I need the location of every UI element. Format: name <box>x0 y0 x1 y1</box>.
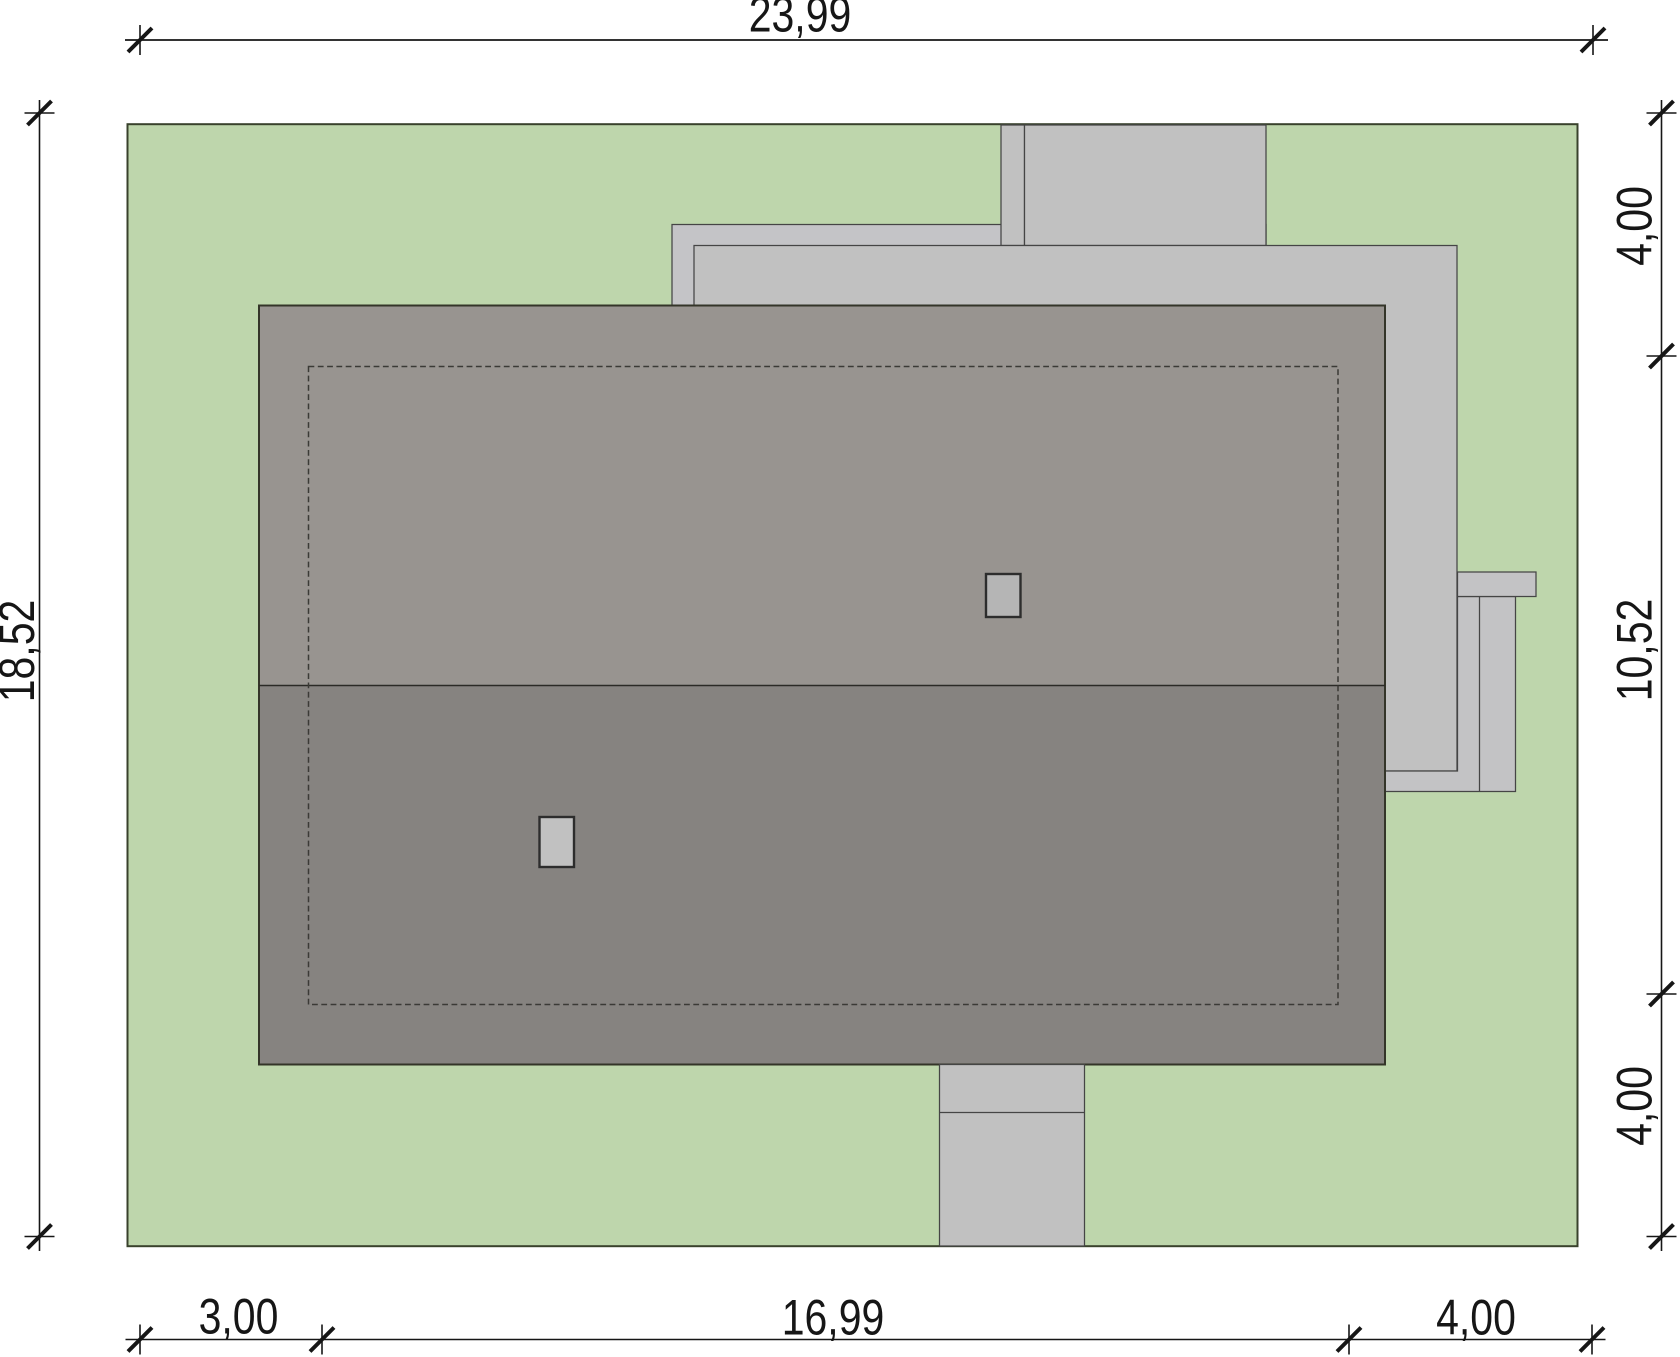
svg-text:4,00: 4,00 <box>1436 1290 1516 1346</box>
svg-text:16,99: 16,99 <box>782 1290 885 1346</box>
svg-text:4,00: 4,00 <box>1607 1066 1663 1146</box>
svg-text:23,99: 23,99 <box>749 0 852 42</box>
svg-text:4,00: 4,00 <box>1607 186 1663 266</box>
svg-text:18,52: 18,52 <box>0 600 45 703</box>
svg-text:3,00: 3,00 <box>199 1289 279 1345</box>
svg-text:10,52: 10,52 <box>1607 599 1663 702</box>
